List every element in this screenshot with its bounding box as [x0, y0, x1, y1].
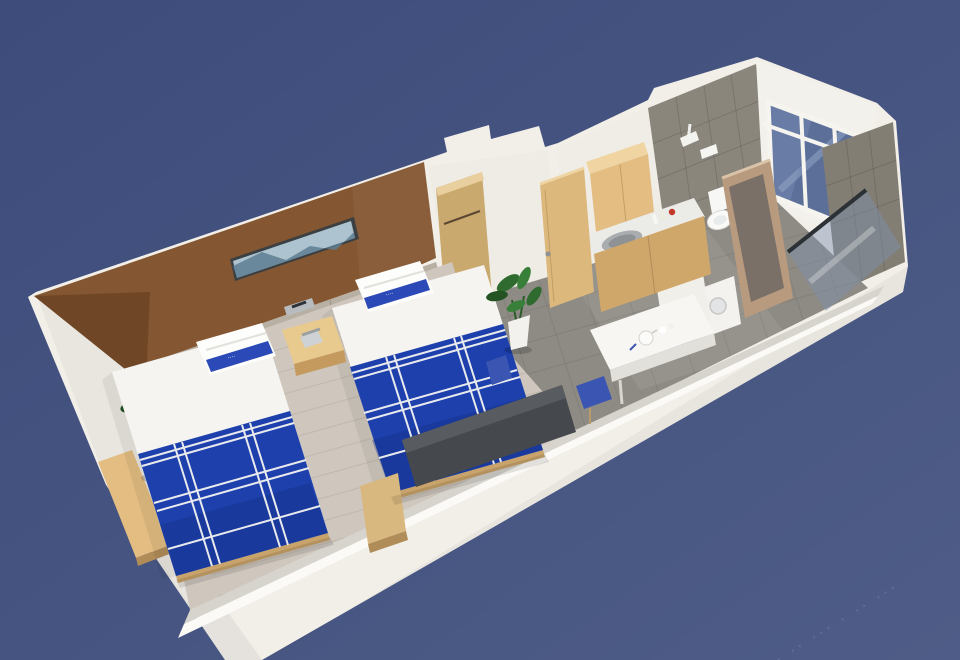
- red-jar: [669, 209, 675, 215]
- cup: [660, 327, 667, 334]
- cup: [668, 323, 674, 329]
- room-render: ···· ····: [0, 0, 960, 660]
- desk-leg: [620, 380, 622, 404]
- render-stage: ···· ····: [0, 0, 960, 660]
- door-handle: [546, 252, 551, 257]
